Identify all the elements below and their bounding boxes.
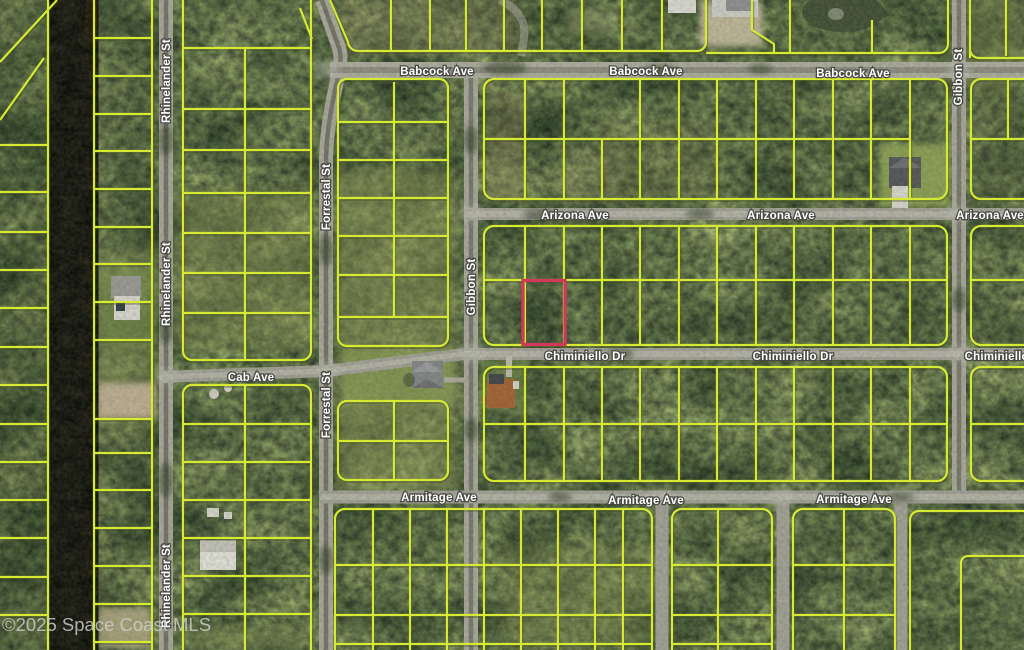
svg-text:Forrestal St: Forrestal St [321,372,333,438]
svg-text:Arizona Ave: Arizona Ave [747,210,815,222]
svg-text:Armitage Ave: Armitage Ave [608,495,684,507]
svg-text:Forrestal St: Forrestal St [321,164,333,230]
svg-text:Chiminiello Dr: Chiminiello Dr [545,351,626,363]
svg-text:Armitage Ave: Armitage Ave [816,494,892,506]
svg-text:Babcock Ave: Babcock Ave [816,68,890,80]
svg-text:Chiminiello Dr: Chiminiello Dr [753,351,834,363]
svg-text:Armitage Ave: Armitage Ave [401,492,477,504]
svg-text:Cab Ave: Cab Ave [228,372,275,384]
svg-text:Babcock Ave: Babcock Ave [400,66,474,78]
svg-text:Rhinelander St: Rhinelander St [161,39,173,123]
svg-text:Chiminiello Dr: Chiminiello Dr [965,351,1024,363]
svg-text:Gibbon St: Gibbon St [953,49,965,106]
svg-text:Arizona Ave: Arizona Ave [541,210,609,222]
svg-text:Gibbon St: Gibbon St [466,259,478,316]
svg-text:Rhinelander St: Rhinelander St [161,242,173,326]
svg-text:Arizona Ave: Arizona Ave [956,210,1024,222]
svg-text:Babcock Ave: Babcock Ave [609,66,683,78]
svg-text:©2025 Space Coast MLS: ©2025 Space Coast MLS [2,614,211,635]
